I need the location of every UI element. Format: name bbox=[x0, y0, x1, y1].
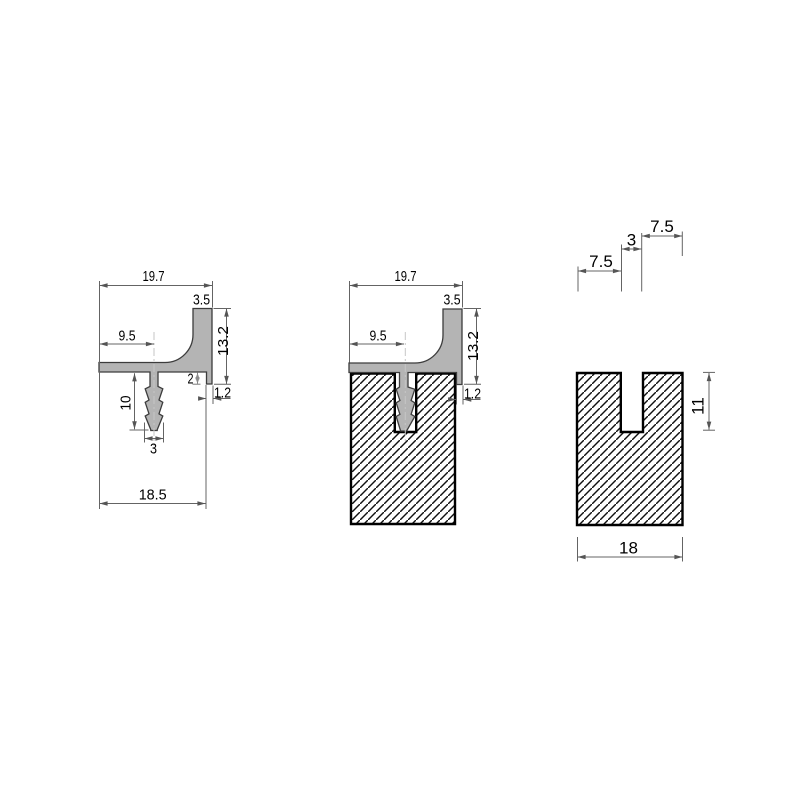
svg-text:13.2: 13.2 bbox=[215, 326, 232, 356]
svg-text:18.5: 18.5 bbox=[139, 487, 167, 504]
svg-text:1.2: 1.2 bbox=[214, 385, 231, 402]
svg-text:7.5: 7.5 bbox=[589, 252, 613, 271]
svg-text:11: 11 bbox=[689, 397, 708, 415]
svg-text:3: 3 bbox=[150, 441, 157, 458]
svg-text:2: 2 bbox=[188, 371, 194, 388]
svg-text:3.5: 3.5 bbox=[444, 292, 461, 309]
svg-text:3.5: 3.5 bbox=[193, 292, 210, 309]
svg-text:9.5: 9.5 bbox=[370, 328, 387, 345]
svg-text:18: 18 bbox=[619, 539, 638, 558]
svg-text:19.7: 19.7 bbox=[143, 268, 165, 285]
svg-text:13.2: 13.2 bbox=[465, 331, 482, 361]
svg-text:3: 3 bbox=[627, 231, 636, 250]
svg-text:19.7: 19.7 bbox=[395, 268, 417, 285]
svg-text:7.5: 7.5 bbox=[650, 217, 674, 236]
svg-text:1.2: 1.2 bbox=[464, 386, 481, 403]
svg-text:9.5: 9.5 bbox=[119, 328, 136, 345]
svg-text:10: 10 bbox=[118, 396, 135, 411]
